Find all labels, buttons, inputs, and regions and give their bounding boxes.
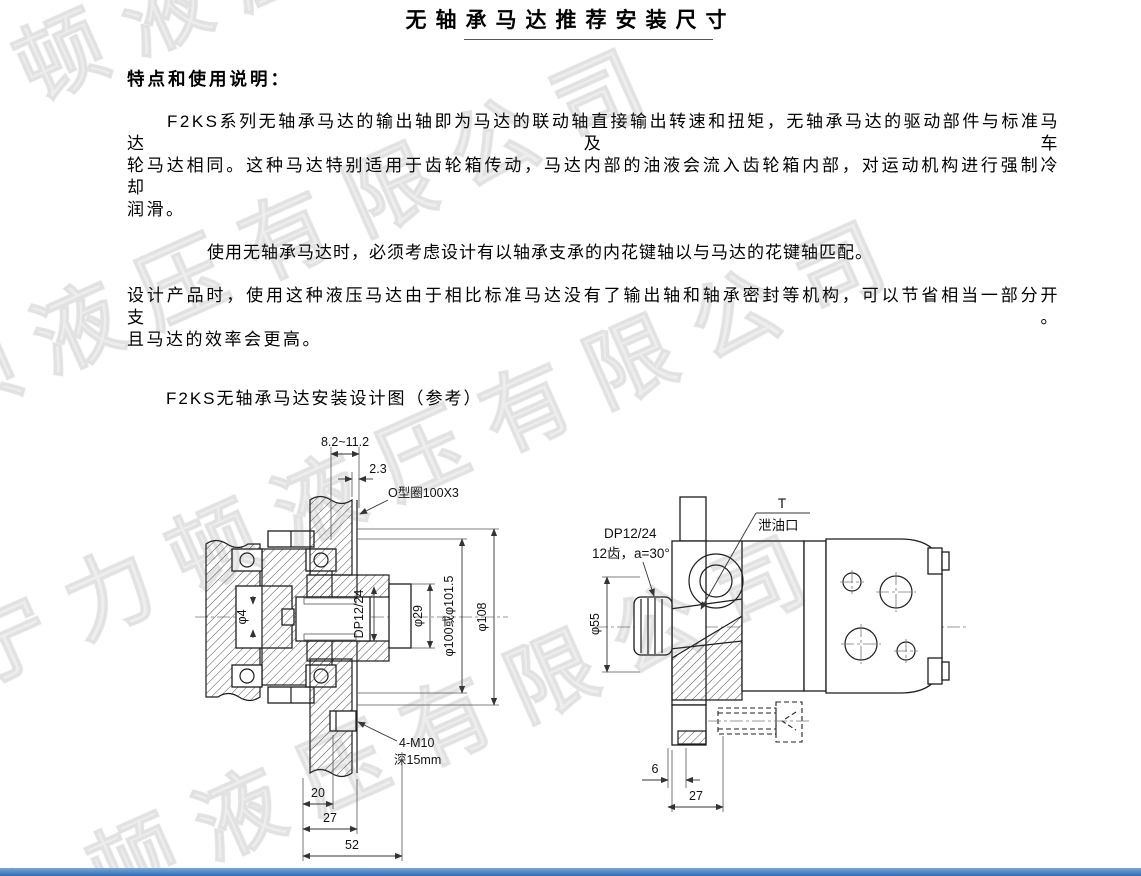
foot-section	[678, 731, 706, 744]
oring-label: O型圈100X3	[388, 486, 459, 500]
paragraph-line-6: 且马达的效率会更高。	[127, 329, 322, 351]
dim-phi100-label: φ100或φ101.5	[442, 576, 456, 657]
page-title: 无轴承马达推荐安装尺寸	[0, 4, 1141, 34]
left-installation-drawing: 8.2~11.2 2.3 O型圈100X3 φ4 DP12/24 φ29 φ10…	[150, 420, 570, 876]
mounting-bolt-hidden	[708, 702, 812, 742]
spline-spec-line2: 12齿，a=30°	[592, 546, 670, 561]
pilot-ring	[389, 584, 411, 648]
spigot-top	[307, 575, 389, 597]
spline-spec-line1: DP12/24	[604, 526, 657, 541]
dim-phi55-label: φ55	[588, 613, 602, 635]
cover-bolt-bottom	[928, 658, 949, 684]
thread-label-line2: 深15mm	[394, 753, 441, 767]
paragraph-line-3: 润滑。	[127, 199, 186, 221]
right-installation-drawing: T 泄油口 DP12/24 12齿，a=30° φ55 6 27	[580, 455, 980, 835]
port-t-label: T	[778, 496, 786, 511]
dim-phi4-label: φ4	[235, 609, 249, 624]
spline-leader	[643, 562, 654, 596]
paragraph-line-1: F2KS系列无轴承马达的输出轴即为马达的联动轴直接输出转速和扭矩，无轴承马达的驱…	[127, 111, 1060, 155]
bearing-top-left	[232, 549, 262, 571]
m10-leader	[358, 722, 397, 741]
dim-phi29-label: φ29	[411, 605, 425, 627]
dim-width-range-label: 8.2~11.2	[321, 435, 369, 449]
spline-spec-label: DP12/24	[352, 590, 366, 639]
section-heading: 特点和使用说明：	[127, 66, 291, 91]
cover-bolt-top	[928, 548, 949, 574]
paragraph-line-4: 使用无轴承马达时，必须考虑设计有以轴承支承的内花键轴以与马达的花键轴匹配。	[127, 242, 873, 264]
paragraph-line-5: 设计产品时，使用这种液压马达由于相比标准马达没有了输出轴和轴承密封等机构，可以节…	[127, 285, 1060, 329]
spline-shaft-end	[634, 597, 672, 655]
dim-27-label: 27	[689, 789, 703, 803]
flange-ear	[680, 497, 706, 541]
footer-accent-bar	[0, 868, 1141, 876]
dim-6-label: 6	[652, 762, 659, 776]
dim-52-label: 52	[345, 838, 359, 852]
dim-2-3-label: 2.3	[369, 462, 386, 476]
dim-phi108-label: φ108	[475, 602, 489, 631]
dim-27-label: 27	[323, 811, 337, 825]
motor-end-cover	[826, 539, 942, 693]
paragraph-line-2: 轮马达相同。这种马达特别适用于齿轮箱传动，马达内部的油液会流入齿轮箱内部，对运动…	[127, 155, 1060, 199]
dim-20-label: 20	[311, 786, 325, 800]
m10-tapped-hole	[330, 711, 356, 731]
title-underline	[464, 39, 713, 40]
motor-mid-section	[804, 541, 826, 691]
document-page: 无轴承马达推荐安装尺寸 特点和使用说明： F2KS系列无轴承马达的输出轴即为马达…	[0, 0, 1141, 876]
bearing-bottom-left	[232, 665, 262, 687]
thread-label-line1: 4-M10	[399, 736, 434, 750]
figure-caption: F2KS无轴承马达安装设计图（参考）	[166, 384, 483, 409]
spigot-bottom	[307, 641, 389, 661]
drain-port-label: 泄油口	[758, 518, 799, 533]
oring-leader	[360, 500, 388, 514]
motor-front-housing	[742, 541, 804, 691]
